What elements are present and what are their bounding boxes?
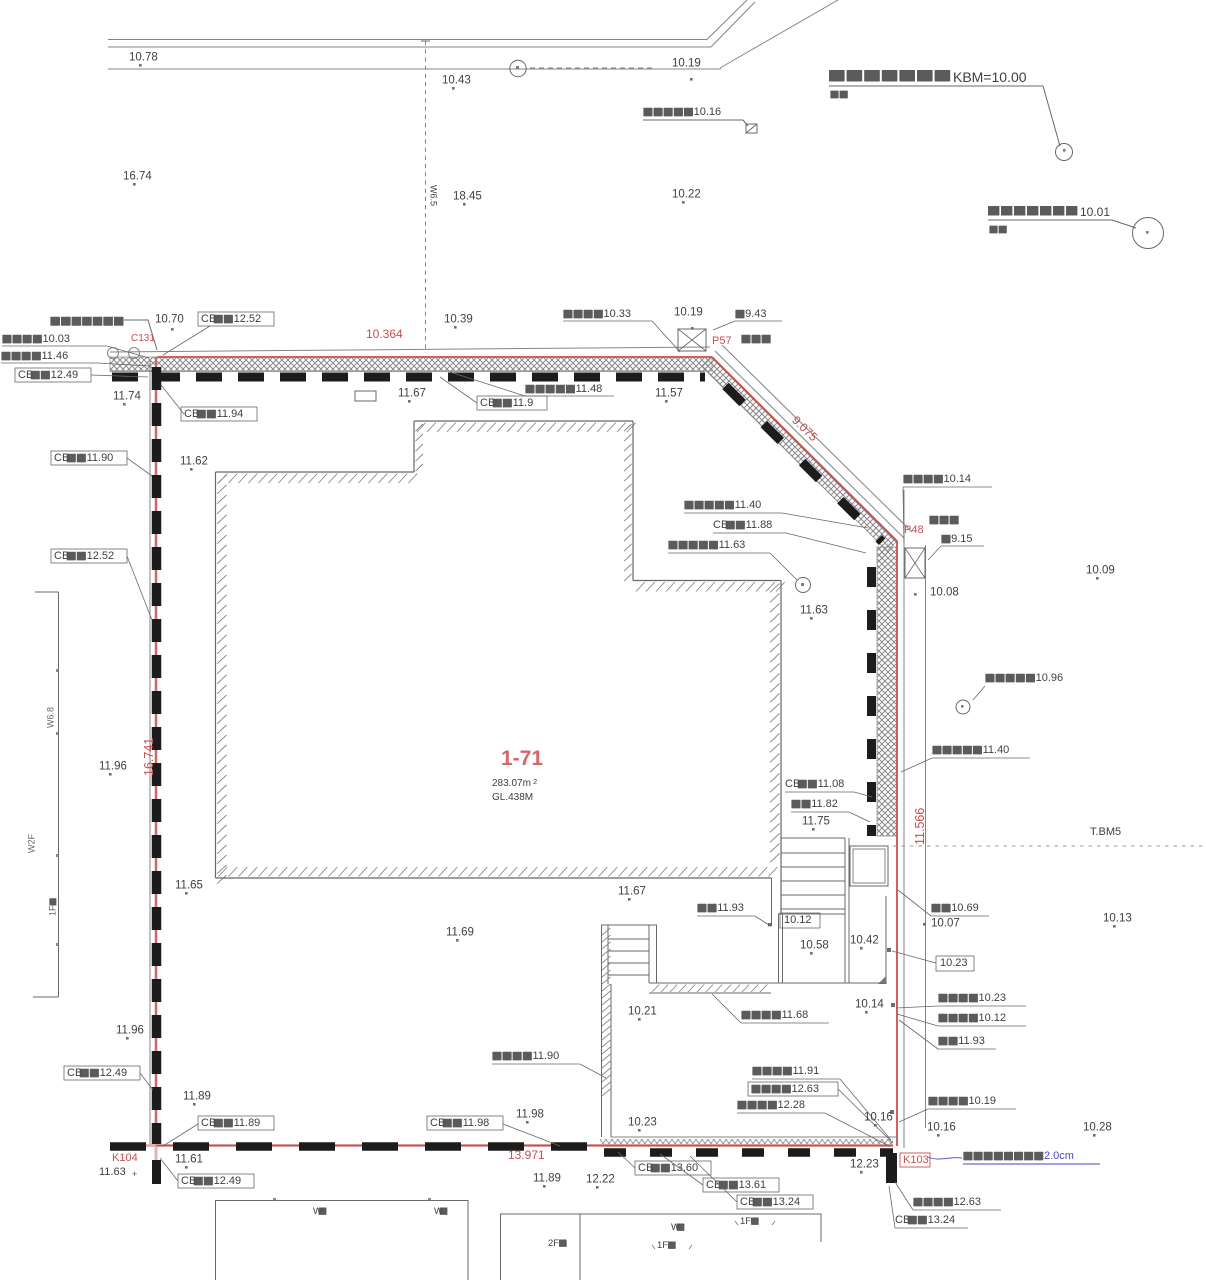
svg-text:10.33: 10.33 [604, 308, 632, 320]
svg-text:1F: 1F [657, 1240, 668, 1251]
svg-text:10.09: 10.09 [1086, 564, 1115, 576]
svg-text:11.74: 11.74 [113, 390, 142, 402]
svg-text:11.68: 11.68 [782, 1009, 809, 1021]
svg-text:13.24: 13.24 [773, 1196, 801, 1208]
svg-text:11.65: 11.65 [175, 879, 203, 891]
svg-text:10.23: 10.23 [940, 957, 968, 969]
svg-text:10.03: 10.03 [43, 333, 71, 345]
svg-text:12.49: 12.49 [51, 369, 79, 381]
svg-text:13.971: 13.971 [508, 1148, 545, 1162]
svg-text:16.74: 16.74 [123, 170, 152, 182]
svg-text:18.45: 18.45 [453, 190, 482, 202]
svg-text:C131: C131 [131, 333, 155, 344]
svg-text:10.14: 10.14 [855, 998, 884, 1010]
svg-text:11.69: 11.69 [446, 926, 474, 938]
svg-text:10.16: 10.16 [927, 1121, 956, 1133]
svg-text:11.94: 11.94 [217, 408, 244, 420]
svg-text:10.78: 10.78 [129, 51, 158, 63]
svg-text:1-71: 1-71 [501, 747, 543, 770]
svg-text:10.13: 10.13 [1103, 912, 1132, 924]
svg-text:10.23: 10.23 [628, 1116, 657, 1128]
svg-text:9.15: 9.15 [951, 533, 972, 545]
svg-text:10.16: 10.16 [864, 1111, 893, 1123]
svg-text:10.19: 10.19 [969, 1095, 997, 1107]
svg-text:W6.5: W6.5 [429, 185, 439, 206]
svg-text:11.96: 11.96 [116, 1024, 144, 1036]
svg-text:10.21: 10.21 [628, 1005, 657, 1017]
svg-text:11.40: 11.40 [735, 499, 762, 511]
svg-text:10.14: 10.14 [944, 473, 972, 485]
svg-text:10.12: 10.12 [979, 1012, 1007, 1024]
svg-text:11.566: 11.566 [913, 808, 927, 845]
svg-text:K103: K103 [903, 1154, 929, 1166]
svg-text:11.67: 11.67 [618, 885, 646, 897]
svg-text:10.69: 10.69 [951, 902, 979, 914]
svg-text:+: + [132, 1169, 137, 1179]
svg-text:11.46: 11.46 [42, 350, 69, 362]
svg-text:GL.438M: GL.438M [492, 792, 533, 803]
svg-text:283.07m: 283.07m [492, 778, 531, 789]
svg-text:11.93: 11.93 [958, 1035, 985, 1047]
svg-text:10.16: 10.16 [694, 106, 722, 118]
svg-text:12.49: 12.49 [214, 1175, 242, 1187]
svg-text:11.82: 11.82 [811, 798, 838, 810]
svg-text:12.23: 12.23 [850, 1158, 879, 1170]
svg-text:10.08: 10.08 [930, 586, 959, 598]
svg-text:W6.8: W6.8 [45, 707, 55, 728]
svg-text:10.96: 10.96 [1036, 672, 1064, 684]
svg-text:11.61: 11.61 [175, 1153, 203, 1165]
svg-text:13.24: 13.24 [928, 1214, 956, 1226]
svg-text:2.0cm: 2.0cm [1044, 1150, 1074, 1162]
svg-text:12.63: 12.63 [792, 1083, 820, 1095]
svg-text:11.96: 11.96 [99, 760, 127, 772]
svg-text:10.19: 10.19 [672, 57, 701, 69]
svg-text:KBM=10.00: KBM=10.00 [953, 69, 1027, 85]
svg-text:12.49: 12.49 [100, 1067, 128, 1079]
svg-text:11.63: 11.63 [719, 539, 746, 551]
svg-text:10.58: 10.58 [800, 939, 829, 951]
svg-text:11.9: 11.9 [513, 397, 534, 409]
svg-text:10.12: 10.12 [784, 914, 812, 926]
svg-text:11.63: 11.63 [99, 1166, 126, 1178]
svg-text:11.89: 11.89 [234, 1117, 261, 1129]
svg-text:10.22: 10.22 [672, 188, 701, 200]
svg-text:P57: P57 [712, 335, 732, 347]
svg-text:11.90: 11.90 [87, 452, 114, 464]
svg-text:12.22: 12.22 [586, 1173, 615, 1185]
svg-text:10.42: 10.42 [850, 934, 879, 946]
svg-text:13.60: 13.60 [671, 1162, 699, 1174]
svg-text:11.98: 11.98 [463, 1117, 490, 1129]
svg-text:11.57: 11.57 [655, 387, 683, 399]
svg-text:P48: P48 [904, 524, 924, 536]
svg-text:1F: 1F [740, 1216, 751, 1227]
svg-text:11.48: 11.48 [576, 383, 603, 395]
svg-text:10.01: 10.01 [1080, 205, 1110, 219]
svg-text:16.741: 16.741 [142, 738, 156, 776]
svg-text:11.91: 11.91 [793, 1065, 820, 1077]
svg-text:11.89: 11.89 [533, 1172, 561, 1184]
svg-text:11.75: 11.75 [802, 815, 830, 827]
svg-text:11.89: 11.89 [183, 1090, 211, 1102]
svg-text:11.62: 11.62 [180, 455, 208, 467]
svg-text:W2F: W2F [26, 834, 36, 854]
svg-text:10.39: 10.39 [444, 313, 473, 325]
svg-text:12.52: 12.52 [234, 313, 262, 325]
svg-text:13.61: 13.61 [739, 1179, 767, 1191]
svg-text:12.28: 12.28 [778, 1099, 806, 1111]
svg-text:11.67: 11.67 [398, 387, 426, 399]
svg-text:10.23: 10.23 [979, 992, 1007, 1004]
svg-text:10.19: 10.19 [674, 306, 703, 318]
svg-text:11.93: 11.93 [717, 902, 744, 914]
svg-text:2F: 2F [548, 1238, 559, 1249]
svg-text:9.43: 9.43 [745, 308, 766, 320]
svg-text:T.BM5: T.BM5 [1090, 826, 1121, 838]
svg-text:11.88: 11.88 [746, 519, 773, 531]
svg-text:1F: 1F [47, 905, 57, 916]
svg-text:10.364: 10.364 [366, 327, 403, 341]
svg-text:10.43: 10.43 [442, 74, 471, 86]
svg-text:11.08: 11.08 [818, 778, 845, 790]
svg-text:10.07: 10.07 [931, 917, 960, 929]
svg-text:12.63: 12.63 [954, 1196, 982, 1208]
svg-text:K104: K104 [112, 1152, 138, 1164]
svg-text:10.28: 10.28 [1083, 1121, 1112, 1133]
svg-text:11.90: 11.90 [533, 1050, 560, 1062]
svg-text:12.52: 12.52 [87, 550, 115, 562]
svg-text:11.63: 11.63 [800, 604, 828, 616]
svg-text:2: 2 [533, 777, 537, 786]
svg-text:11.40: 11.40 [983, 744, 1010, 756]
svg-text:10.70: 10.70 [155, 313, 184, 325]
svg-text:11.98: 11.98 [516, 1108, 544, 1120]
